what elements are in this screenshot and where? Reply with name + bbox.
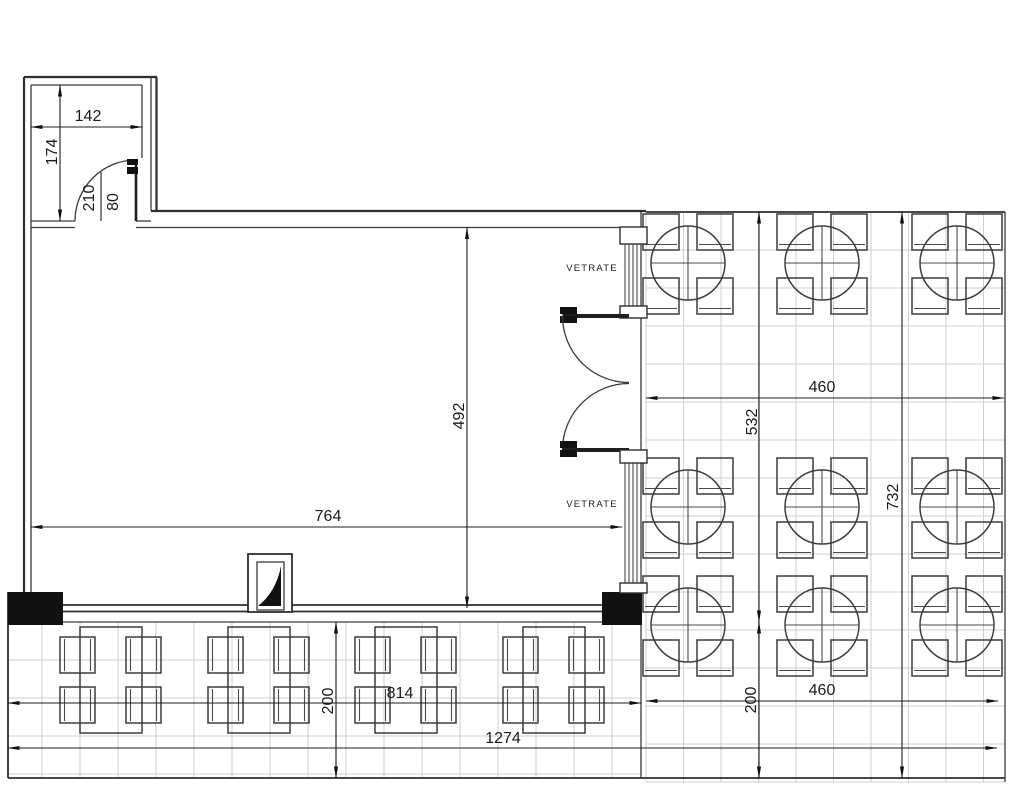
dim-label-left-terrace-width: 814 xyxy=(387,685,414,702)
dim-label-right-terrace-width-bottom: 460 xyxy=(809,682,836,699)
round-table-group xyxy=(912,214,1002,314)
vestibule-door-handle-icon xyxy=(127,159,138,165)
floor-plan-drawing: VETRATE VETRATE 142 174 210 80 492 764 4… xyxy=(0,0,1009,785)
round-table-group xyxy=(777,214,867,314)
glass-door-swing-arc-top xyxy=(563,316,630,383)
dim-label-door-height: 210 xyxy=(81,185,98,212)
walls xyxy=(8,77,646,625)
rect-table-group xyxy=(208,627,309,733)
round-table-group xyxy=(643,458,733,558)
door-handle-icon xyxy=(560,441,577,448)
pillar-bottom-right xyxy=(602,592,642,625)
furniture-layer xyxy=(60,214,1002,733)
chair xyxy=(421,637,456,673)
chair xyxy=(355,687,390,723)
door-handle-icon xyxy=(560,450,577,457)
glazing-label-top: VETRATE xyxy=(566,263,618,274)
vestibule-door-handle-icon xyxy=(127,167,138,174)
chair xyxy=(274,687,309,723)
threshold-wedge-icon xyxy=(258,566,281,606)
window-sill-block xyxy=(620,227,647,244)
dim-label-hall-depth: 492 xyxy=(451,403,468,430)
chair xyxy=(208,687,243,723)
dim-label-left-terrace-depth: 200 xyxy=(320,688,337,715)
round-table-group xyxy=(912,458,1002,558)
round-table-group xyxy=(777,458,867,558)
chair xyxy=(208,637,243,673)
door-handle-icon xyxy=(560,307,577,314)
dim-label-right-terrace-total-height: 732 xyxy=(885,484,902,511)
round-table-group xyxy=(643,214,733,314)
rect-table xyxy=(80,627,142,733)
chair xyxy=(503,687,538,723)
dim-label-right-terrace-width-top: 460 xyxy=(809,379,836,396)
rect-table xyxy=(228,627,290,733)
chair xyxy=(60,687,95,723)
entry-threshold xyxy=(248,554,292,612)
round-table-group xyxy=(777,576,867,676)
rect-table-group xyxy=(60,627,161,733)
dim-label-right-terrace-depth: 200 xyxy=(743,687,760,714)
rect-table-group xyxy=(355,627,456,733)
window-sill-block xyxy=(620,450,647,463)
glass-door-swing-arc-bottom xyxy=(563,384,630,451)
floor-plan-canvas: VETRATE VETRATE 142 174 210 80 492 764 4… xyxy=(0,0,1009,785)
chair xyxy=(355,637,390,673)
chair xyxy=(274,637,309,673)
rect-table xyxy=(523,627,585,733)
dim-label-hall-width: 764 xyxy=(315,508,342,525)
chair xyxy=(421,687,456,723)
dim-label-vestibule-depth: 174 xyxy=(44,139,61,166)
glazing-label-bottom: VETRATE xyxy=(566,499,618,510)
pillar-bottom-left xyxy=(8,592,63,625)
round-table-group xyxy=(643,576,733,676)
dim-label-total-width: 1274 xyxy=(485,730,521,747)
chair xyxy=(503,637,538,673)
dim-label-door-width: 80 xyxy=(105,193,122,211)
window-sill-block xyxy=(620,583,647,593)
chair xyxy=(60,637,95,673)
glass-wall-vetrate: VETRATE VETRATE xyxy=(560,227,647,593)
rect-table-group xyxy=(503,627,604,733)
terrace-boundaries xyxy=(8,212,1005,782)
round-table-group xyxy=(912,576,1002,676)
dim-label-vestibule-width: 142 xyxy=(75,108,102,125)
dim-label-right-terrace-upper-height: 532 xyxy=(744,409,761,436)
